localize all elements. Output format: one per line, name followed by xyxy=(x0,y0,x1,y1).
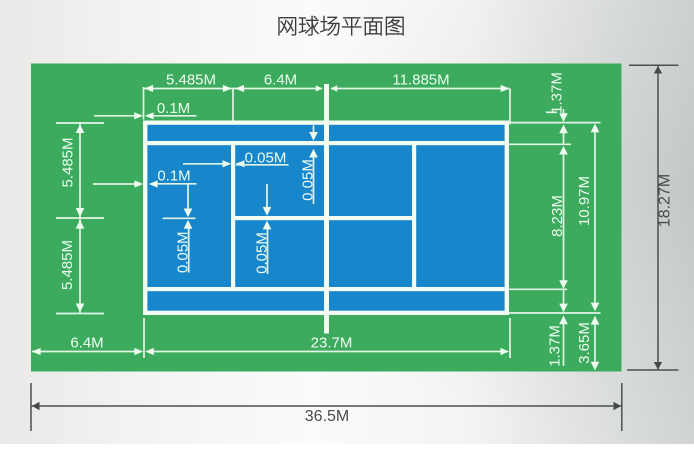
svg-text:8.23M: 8.23M xyxy=(549,195,566,237)
svg-text:5.485M: 5.485M xyxy=(59,240,76,290)
svg-text:6.4M: 6.4M xyxy=(70,335,103,352)
svg-text:10.97M: 10.97M xyxy=(576,176,593,226)
svg-text:0.05M: 0.05M xyxy=(299,159,316,201)
svg-text:0.05M: 0.05M xyxy=(245,150,287,167)
svg-text:23.7M: 23.7M xyxy=(311,335,353,352)
svg-text:11.885M: 11.885M xyxy=(392,72,449,89)
svg-text:1.37M: 1.37M xyxy=(547,325,564,367)
svg-text:0.1M: 0.1M xyxy=(157,100,190,117)
svg-text:6.4M: 6.4M xyxy=(264,72,297,89)
svg-text:18.27M: 18.27M xyxy=(657,174,674,227)
svg-text:0.1M: 0.1M xyxy=(157,168,190,185)
svg-text:0.05M: 0.05M xyxy=(175,231,192,273)
svg-text:3.65M: 3.65M xyxy=(576,322,593,364)
svg-text:36.5M: 36.5M xyxy=(305,408,349,425)
svg-text:0.05M: 0.05M xyxy=(253,232,270,274)
svg-text:1.37M: 1.37M xyxy=(549,72,566,114)
svg-text:5.485M: 5.485M xyxy=(166,72,216,89)
svg-text:5.485M: 5.485M xyxy=(60,137,77,187)
